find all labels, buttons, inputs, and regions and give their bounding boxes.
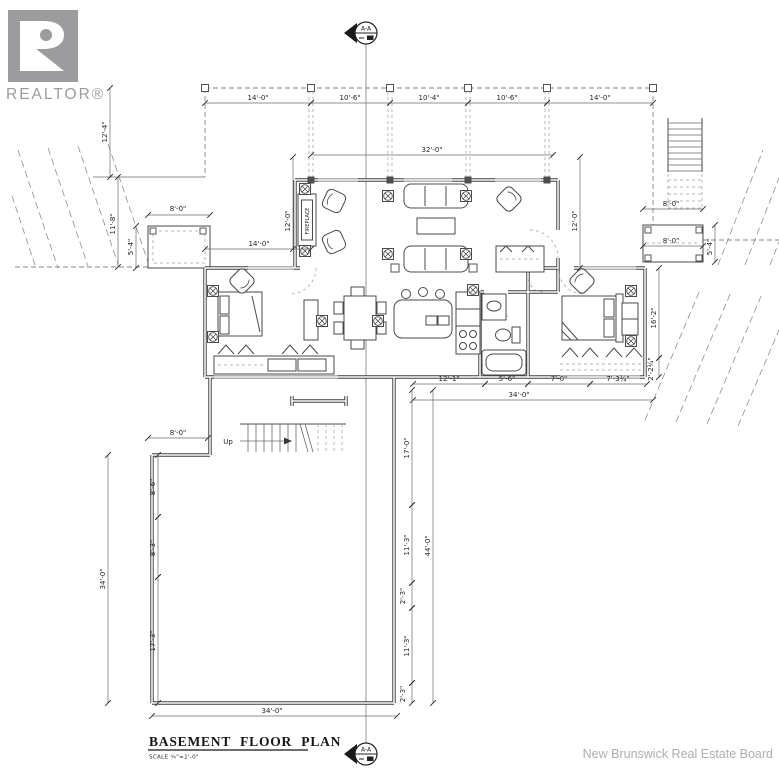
right-bedroom-furniture	[560, 267, 642, 370]
bar-stool	[436, 290, 445, 299]
kitchen-furniture	[394, 288, 480, 355]
dimension-label: 17'-3"	[149, 630, 157, 651]
window-seat	[560, 348, 642, 370]
bathtub	[482, 350, 526, 375]
dimension-label: 8'-0"	[170, 205, 187, 213]
left-deck	[148, 226, 210, 268]
bar-stool	[419, 288, 428, 297]
grade-hatching-right	[645, 150, 779, 426]
dimension-label: 14'-0"	[589, 94, 610, 102]
dimension-label: 12'-1"	[438, 375, 459, 383]
dimension-label: 12'-4"	[101, 121, 109, 142]
dimension-label: 8'-0"	[663, 237, 680, 245]
toilet	[496, 327, 521, 343]
floor-plan-page: 14'-0"10'-6"10'-4"10'-6"14'-0"32'-0"12'-…	[0, 0, 779, 768]
armchair	[321, 188, 348, 215]
dimension-label: 12'-0"	[571, 210, 579, 231]
dresser	[304, 300, 318, 340]
dimension-label: 8'-3"	[149, 540, 157, 557]
dimension-label: 10'-6"	[339, 94, 360, 102]
dimension-label: 11'-8"	[109, 213, 117, 234]
sofa	[404, 246, 468, 272]
kitchen-island	[394, 300, 452, 338]
drawing-title: BASEMENT FLOOR PLAN	[149, 734, 341, 749]
floor-plan-drawing: 14'-0"10'-6"10'-4"10'-6"14'-0"32'-0"12'-…	[0, 0, 779, 768]
dimension-label: 5'-4"	[127, 239, 135, 256]
window-seat	[214, 345, 334, 374]
dimension-label: 11'-3"	[403, 635, 411, 656]
dimension-label: 2'-3"	[399, 686, 407, 703]
dimension-label: 8'-0"	[170, 429, 187, 437]
plan-label: Up	[223, 438, 233, 446]
realtor-wordmark: REALTOR®	[6, 86, 105, 103]
plan-label: FIREPLACE	[305, 208, 311, 235]
dimension-label: 8'-0"	[663, 200, 680, 208]
dimension-label: 5'-4"	[706, 239, 714, 256]
living-room-furniture	[298, 184, 544, 272]
dimension-label: 7'-3¾"	[606, 375, 629, 383]
drawing-scale: SCALE ¾"=1'-0"	[149, 755, 199, 761]
storage-cabinet	[496, 246, 544, 272]
dimension-label: 11'-3"	[403, 534, 411, 555]
dimension-label: 17'-0"	[403, 437, 411, 458]
bathroom-fixtures	[482, 294, 526, 375]
nightstand	[622, 303, 638, 335]
title-block: BASEMENT FLOOR PLAN SCALE ¾"=1'-0"	[148, 734, 341, 761]
dimension-label: 7'-0"	[551, 375, 568, 383]
realtor-logo: REALTOR®	[6, 10, 105, 103]
stove	[456, 326, 480, 354]
bed	[562, 294, 623, 342]
dimension-label: 32'-0"	[421, 146, 442, 154]
vanity	[482, 294, 506, 320]
dimension-label: 14'-0"	[248, 240, 269, 248]
armchair	[495, 185, 523, 213]
dimension-label: 8'-6"	[149, 479, 157, 496]
interior-stairs	[240, 424, 346, 452]
dimension-label: 10'-6"	[496, 94, 517, 102]
armchair	[228, 267, 256, 295]
bar-stool	[402, 290, 411, 299]
dimension-label: 10'-4"	[418, 94, 439, 102]
dimension-label: 34'-0"	[99, 568, 107, 589]
sofa	[404, 184, 468, 208]
dimension-label: 44'-0"	[424, 535, 432, 556]
dimension-label: 5'-6"	[499, 375, 516, 383]
armchair	[568, 267, 596, 295]
dimension-label: 2'-2¾"	[647, 357, 655, 380]
coffee-table	[417, 218, 455, 234]
dimension-label: 14'-0"	[247, 94, 268, 102]
section-marker-bottom: A-A	[344, 743, 377, 765]
exterior-stairs	[668, 118, 702, 210]
bed	[218, 292, 262, 336]
dimension-label: 12'-0"	[284, 210, 292, 231]
section-label: A-A	[361, 747, 372, 754]
board-credit: New Brunswick Real Estate Board	[583, 747, 773, 761]
dimension-label: 34'-0"	[261, 707, 282, 715]
section-marker-top: A-A	[344, 22, 377, 44]
dining-table	[344, 296, 376, 340]
dimension-label: 34'-0"	[508, 391, 529, 399]
dimension-label: 2'-3"	[399, 588, 407, 605]
section-label: A-A	[361, 26, 372, 33]
dimension-label: 16'-2"	[650, 307, 658, 328]
armchair	[321, 229, 348, 256]
